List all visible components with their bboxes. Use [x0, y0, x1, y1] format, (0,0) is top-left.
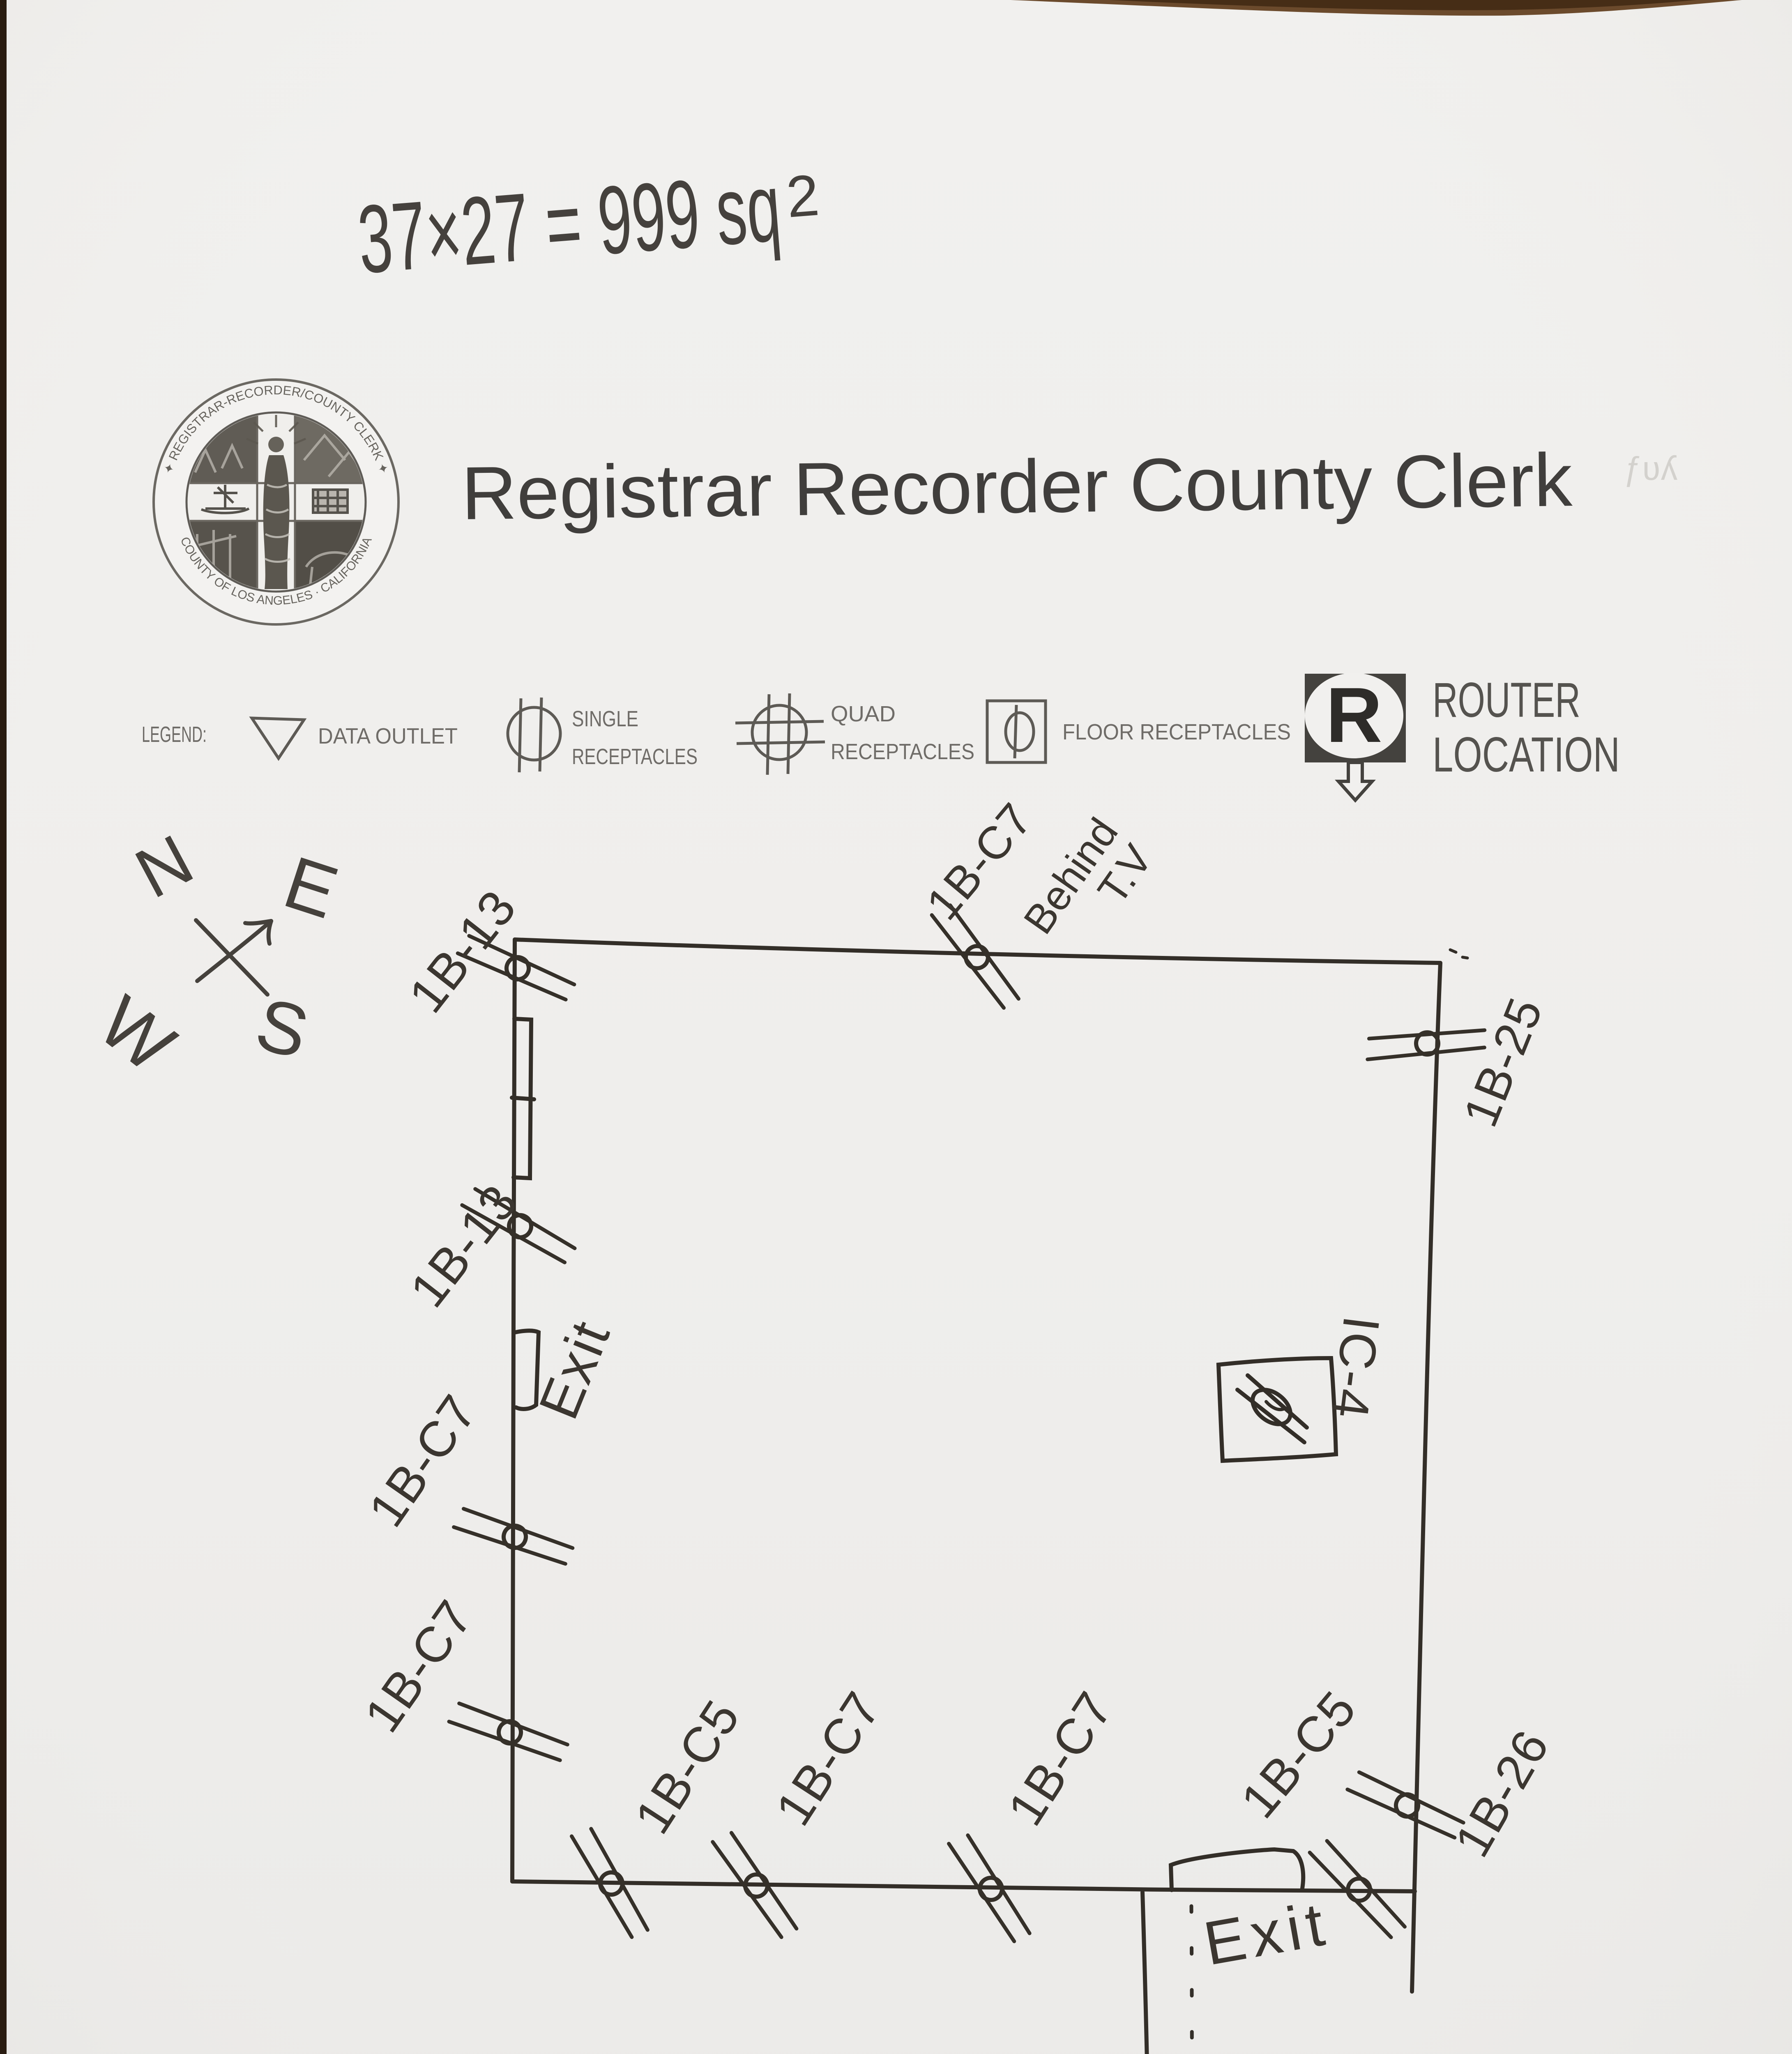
svg-text:ROUTER: ROUTER — [1433, 672, 1580, 728]
svg-text:ƒʋʎ: ƒʋʎ — [1624, 450, 1677, 487]
svg-text:QUAD: QUAD — [831, 702, 896, 726]
svg-text:RECEPTACLES: RECEPTACLES — [572, 744, 698, 769]
svg-text:R: R — [1326, 672, 1382, 759]
svg-text:FLOOR RECEPTACLES: FLOOR RECEPTACLES — [1062, 720, 1291, 744]
svg-text:LEGEND:: LEGEND: — [142, 722, 207, 747]
svg-text:Registrar Recorder County Cler: Registrar Recorder County Clerk — [461, 438, 1573, 535]
svg-text:LOCATION: LOCATION — [1433, 727, 1620, 782]
svg-text:SINGLE: SINGLE — [572, 707, 638, 731]
svg-text:2: 2 — [784, 162, 821, 230]
svg-text:DATA OUTLET: DATA OUTLET — [318, 724, 458, 748]
svg-text:RECEPTACLES: RECEPTACLES — [831, 739, 974, 764]
